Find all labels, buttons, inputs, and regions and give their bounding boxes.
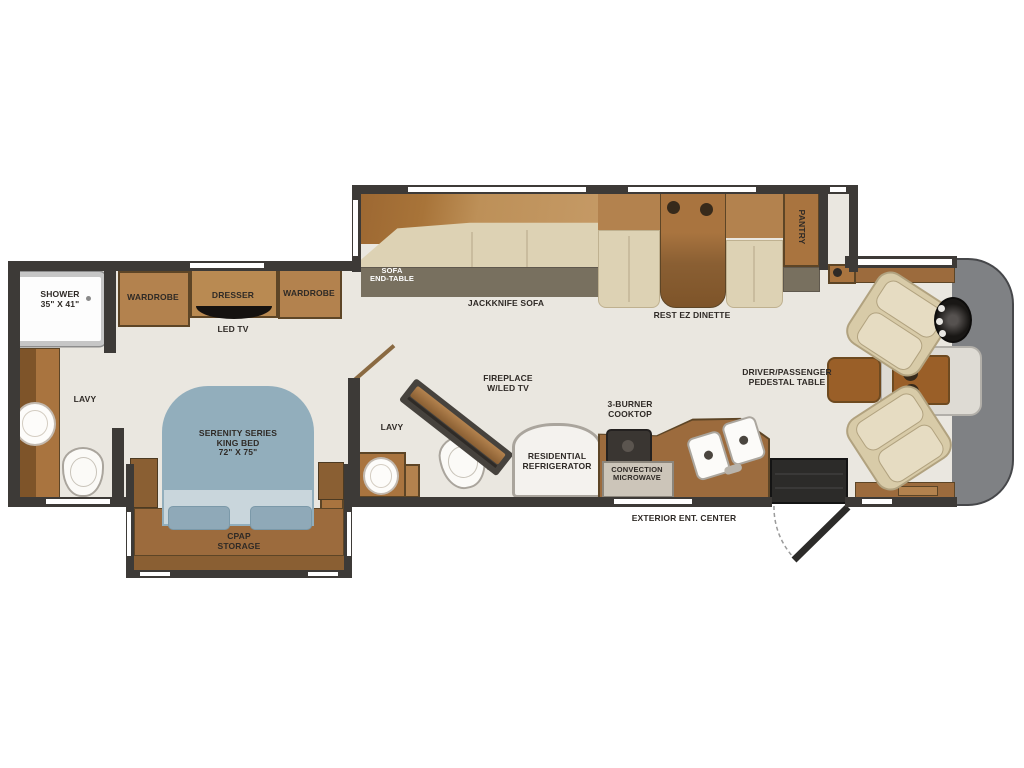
window	[614, 499, 692, 504]
cpap-label: CPAP STORAGE	[218, 532, 261, 551]
dinette-backrest-left	[598, 194, 660, 232]
entry-door-swing	[756, 500, 866, 572]
slide-window	[353, 200, 358, 256]
wardrobe-left-label: WARDROBE	[127, 293, 179, 303]
bed-pillow	[168, 506, 230, 530]
bed-slide-bottom-cabinet	[134, 556, 344, 570]
entry-stairwell	[770, 458, 848, 504]
slide-window	[308, 572, 338, 576]
shower-label: SHOWER 35" X 41"	[40, 290, 79, 309]
mid-lavy-label: LAVY	[381, 423, 404, 433]
rear-lavy-label: LAVY	[74, 395, 97, 405]
rear-lav-sink	[14, 402, 56, 446]
microwave-label: CONVECTION MICROWAVE	[611, 466, 663, 483]
windshield-band	[852, 259, 952, 265]
slide-window	[628, 187, 756, 192]
steering-wheel-notch	[938, 305, 945, 312]
steering-wheel-notch	[936, 318, 943, 325]
exterior-ent-label: EXTERIOR ENT. CENTER	[632, 514, 737, 524]
cup-holder	[667, 201, 680, 214]
window	[46, 499, 110, 504]
slide-window	[140, 572, 170, 576]
steering-wheel-notch	[939, 330, 946, 337]
slide-window	[408, 187, 586, 192]
sofa-seam	[471, 232, 473, 270]
nightstand-left	[130, 458, 158, 508]
sofa-seam	[526, 230, 528, 270]
slide-window	[830, 187, 846, 192]
mid-lav-sink	[363, 457, 399, 495]
cup-holder	[700, 203, 713, 216]
wall-rear	[8, 261, 20, 507]
shower-drain	[86, 296, 91, 301]
led-tv-label: LED TV	[217, 325, 248, 335]
cooktop-label: 3-BURNER COOKTOP	[607, 400, 652, 419]
dinette-seat-seam	[628, 236, 630, 302]
floor-plan-page: SHOWER 35" X 41" WARDROBE DRESSER WARDRO…	[0, 0, 1024, 768]
slideout-wall-right	[849, 185, 858, 272]
pantry-wall	[819, 185, 828, 270]
cooktop-burner	[622, 440, 634, 452]
sofa-end-table-label: SOFA END-TABLE	[370, 267, 414, 284]
slide-window	[127, 512, 131, 556]
dinette-seat-seam	[753, 246, 755, 302]
bed-pillow	[250, 506, 312, 530]
wall-bottom-mid	[348, 497, 772, 507]
pantry-label: PANTRY	[796, 210, 806, 245]
window	[190, 263, 264, 268]
pedestal-table	[827, 357, 881, 403]
slide-window	[347, 512, 351, 556]
wall-bath-bedroom	[112, 428, 124, 502]
mid-vanity-ext	[404, 464, 420, 498]
dinette-backrest-right	[726, 194, 783, 238]
dash-inset	[898, 486, 938, 496]
window	[862, 499, 892, 504]
wall-top-rear	[8, 261, 360, 271]
nightstand-right	[318, 462, 344, 500]
dresser-label: DRESSER	[212, 291, 254, 301]
fireplace-label: FIREPLACE W/LED TV	[483, 374, 533, 393]
jackknife-sofa-label: JACKKNIFE SOFA	[468, 299, 544, 309]
rest-ez-dinette-label: REST EZ DINETTE	[654, 311, 731, 321]
floor-plan: SHOWER 35" X 41" WARDROBE DRESSER WARDRO…	[0, 0, 1024, 768]
wall-shower-side	[104, 261, 116, 353]
cabinet-knob	[833, 268, 842, 277]
pantry-counter	[783, 267, 820, 292]
pedestal-table-label: DRIVER/PASSENGER PEDESTAL TABLE	[742, 368, 832, 387]
king-bed-label: SERENITY SERIES KING BED 72" X 75"	[199, 429, 277, 458]
wardrobe-right-label: WARDROBE	[283, 289, 335, 299]
refrigerator-label: RESIDENTIAL REFRIGERATOR	[522, 452, 591, 471]
